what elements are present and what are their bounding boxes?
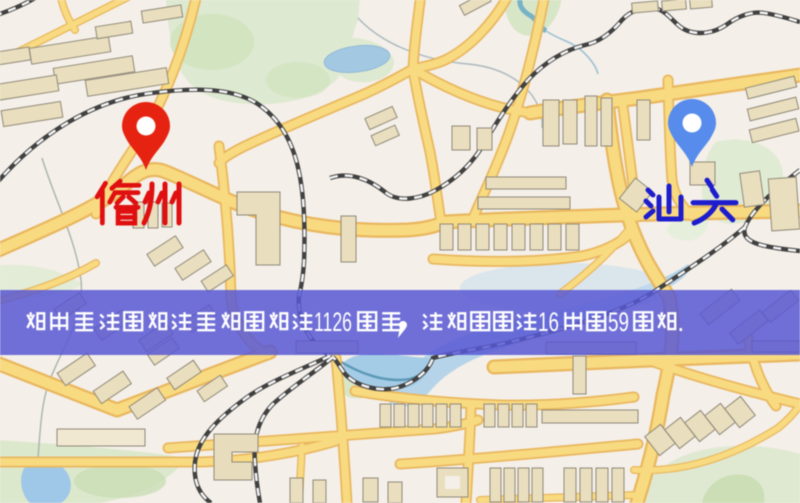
svg-text:59: 59 bbox=[608, 307, 629, 337]
svg-text:.: . bbox=[677, 307, 685, 337]
svg-text:16: 16 bbox=[538, 307, 559, 337]
svg-text:1126: 1126 bbox=[314, 307, 352, 337]
